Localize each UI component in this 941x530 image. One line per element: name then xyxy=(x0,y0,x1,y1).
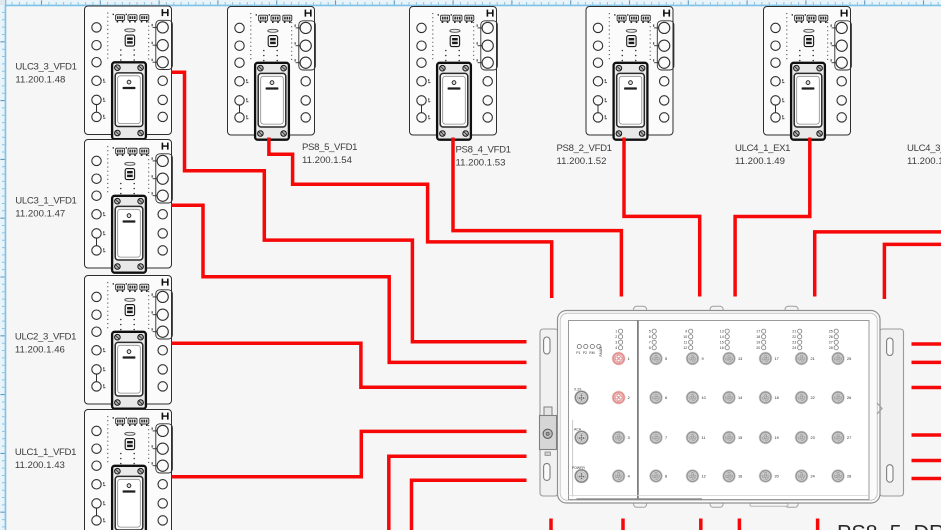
svg-text:2: 2 xyxy=(615,335,617,339)
svg-text:24: 24 xyxy=(811,475,815,479)
svg-text:15: 15 xyxy=(720,341,724,345)
svg-text:11: 11 xyxy=(702,436,706,440)
svg-text:16: 16 xyxy=(720,346,724,350)
svg-text:23: 23 xyxy=(811,436,815,440)
svg-text:3: 3 xyxy=(628,436,630,440)
svg-text:PS8_2_VFD1: PS8_2_VFD1 xyxy=(557,143,612,154)
svg-text:27: 27 xyxy=(847,436,851,440)
svg-text:14: 14 xyxy=(738,396,742,400)
svg-text:20: 20 xyxy=(756,346,760,350)
svg-text:4: 4 xyxy=(628,475,630,479)
svg-text:28: 28 xyxy=(829,346,833,350)
svg-text:ULC3_3_VFD1: ULC3_3_VFD1 xyxy=(15,62,76,73)
svg-text:ULC3_1_VFD1: ULC3_1_VFD1 xyxy=(15,196,76,207)
svg-text:6: 6 xyxy=(665,396,667,400)
svg-text:13: 13 xyxy=(720,330,724,334)
svg-text:11: 11 xyxy=(684,341,688,345)
svg-text:RM: RM xyxy=(589,351,594,355)
svg-text:11.200.1.48: 11.200.1.48 xyxy=(15,75,65,86)
svg-text:11.200.1.53: 11.200.1.53 xyxy=(456,158,506,169)
svg-text:10: 10 xyxy=(683,335,687,339)
svg-text:PS8_5_DRM1: PS8_5_DRM1 xyxy=(837,521,941,530)
svg-text:PS8_5_VFD1: PS8_5_VFD1 xyxy=(302,142,357,153)
svg-text:12: 12 xyxy=(683,346,687,350)
svg-text:28: 28 xyxy=(847,475,851,479)
svg-text:11.200.1.43: 11.200.1.43 xyxy=(15,460,65,471)
svg-text:P1: P1 xyxy=(576,351,580,355)
svg-text:25: 25 xyxy=(847,357,851,361)
svg-text:11.200.1.49: 11.200.1.49 xyxy=(735,156,785,167)
svg-text:ULC4_3_V: ULC4_3_V xyxy=(907,143,941,154)
svg-text:14: 14 xyxy=(720,335,724,339)
svg-text:11.200.1.52: 11.200.1.52 xyxy=(557,156,607,167)
svg-text:13: 13 xyxy=(738,357,742,361)
svg-text:16: 16 xyxy=(738,475,742,479)
svg-text:1: 1 xyxy=(628,357,630,361)
svg-text:26: 26 xyxy=(829,335,833,339)
svg-text:11.200.1.47: 11.200.1.47 xyxy=(15,209,65,220)
svg-text:23: 23 xyxy=(792,341,796,345)
svg-text:8: 8 xyxy=(665,475,667,479)
svg-text:1: 1 xyxy=(615,330,617,334)
svg-text:20: 20 xyxy=(775,475,779,479)
svg-text:15: 15 xyxy=(738,436,742,440)
svg-text:19: 19 xyxy=(775,436,779,440)
svg-text:9: 9 xyxy=(702,357,704,361)
svg-text:21: 21 xyxy=(811,357,815,361)
svg-text:10: 10 xyxy=(702,396,706,400)
svg-text:8: 8 xyxy=(649,346,651,350)
svg-text:P2: P2 xyxy=(583,351,587,355)
svg-text:17: 17 xyxy=(775,357,779,361)
svg-text:FAULT: FAULT xyxy=(599,346,603,356)
svg-text:19: 19 xyxy=(756,341,760,345)
svg-text:18: 18 xyxy=(775,396,779,400)
svg-text:24: 24 xyxy=(792,346,796,350)
svg-text:3: 3 xyxy=(615,341,617,345)
svg-text:7: 7 xyxy=(665,436,667,440)
svg-text:26: 26 xyxy=(847,396,851,400)
svg-text:7: 7 xyxy=(649,341,651,345)
svg-text:ULC4_1_EX1: ULC4_1_EX1 xyxy=(735,143,790,154)
svg-text:4: 4 xyxy=(615,346,617,350)
svg-text:11.200.1.: 11.200.1. xyxy=(907,156,941,167)
svg-text:9: 9 xyxy=(685,330,687,334)
svg-text:ULC1_1_VFD1: ULC1_1_VFD1 xyxy=(15,447,76,458)
svg-text:21: 21 xyxy=(792,330,796,334)
svg-text:12: 12 xyxy=(702,475,706,479)
svg-text:27: 27 xyxy=(829,341,833,345)
svg-text:6: 6 xyxy=(649,335,651,339)
svg-text:18: 18 xyxy=(756,335,760,339)
svg-text:ULC2_3_VFD1: ULC2_3_VFD1 xyxy=(15,332,76,343)
svg-text:25: 25 xyxy=(829,330,833,334)
svg-text:11.200.1.46: 11.200.1.46 xyxy=(15,345,65,356)
svg-text:17: 17 xyxy=(756,330,760,334)
svg-text:22: 22 xyxy=(811,396,815,400)
svg-text:2: 2 xyxy=(628,396,630,400)
svg-text:5: 5 xyxy=(665,357,667,361)
svg-text:PS8_4_VFD1: PS8_4_VFD1 xyxy=(456,145,511,156)
svg-text:11.200.1.54: 11.200.1.54 xyxy=(302,155,353,166)
svg-text:22: 22 xyxy=(792,335,796,339)
svg-text:5: 5 xyxy=(649,330,651,334)
